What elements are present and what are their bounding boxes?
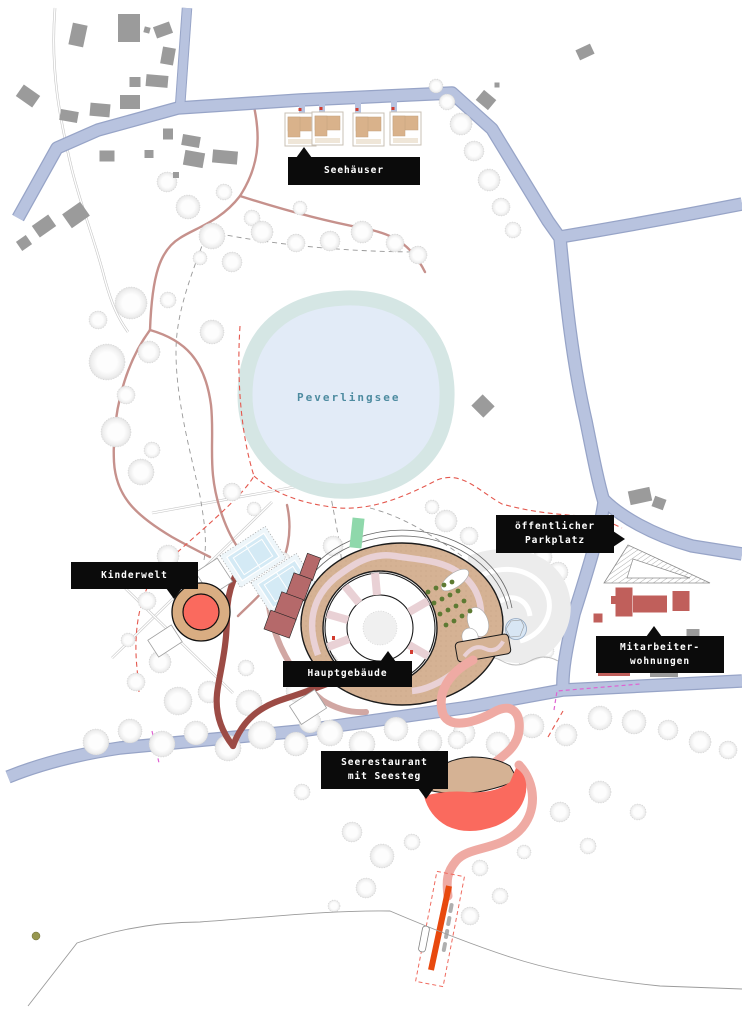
tree [517,845,531,859]
callout-pointer-icon [646,626,662,637]
tree [144,442,160,458]
tree [89,344,125,380]
tree [439,94,455,110]
tree [409,246,427,264]
tree [247,502,261,516]
callout-label: Parkplatz [525,534,585,548]
building [118,14,140,42]
building [173,172,179,178]
tree [351,221,373,243]
building [471,394,494,417]
tree [89,311,107,329]
callout-label: mit Seesteg [348,770,421,784]
marker-dot [32,932,40,940]
planting-dot [444,623,449,628]
seesteg-pier [416,871,465,986]
building [495,83,500,88]
callout-label: wohnungen [630,655,690,669]
callout-seehaeuser: Seehäuser [288,157,420,185]
tree [184,721,208,745]
tree [550,802,570,822]
tree [450,113,472,135]
tree [200,320,224,344]
tree [555,724,577,746]
tree [101,417,131,447]
tree [284,732,308,756]
tree [294,784,310,800]
planting-dot [468,609,473,614]
tree [478,169,500,191]
tree [83,729,109,755]
seehaus-roof [356,117,368,137]
tree [138,341,160,363]
tree [589,781,611,803]
tree [588,706,612,730]
tree [164,687,192,715]
callout-pointer-icon [613,531,625,547]
building [145,150,154,158]
tree [176,195,200,219]
callout-mitarbeiterwohnungen: Mitarbeiter- wohnungen [596,636,724,673]
building [212,149,238,164]
tree [127,673,145,691]
driveway-marker [356,108,359,111]
planting-dot [442,583,447,588]
tree [287,234,305,252]
tree [356,878,376,898]
tree [460,527,478,545]
building [146,74,169,88]
tree [293,201,307,215]
planting-dot [446,608,451,613]
seehaeuser-houses [285,107,421,146]
callout-label: Seehäuser [324,164,384,178]
driveway-marker [392,107,395,110]
building [62,202,90,229]
building [16,235,32,251]
staff-building [611,596,617,604]
building [130,77,141,87]
planting-dot [460,614,465,619]
tree [658,720,678,740]
tree [138,592,156,610]
seehaus-roof [393,116,405,136]
tree [199,223,225,249]
building [183,150,205,168]
planting-dot [432,601,437,606]
callout-hauptgebaeude: Hauptgebäude [283,661,412,687]
tree [238,660,254,676]
tree [128,459,154,485]
tree [216,184,232,200]
tree [193,251,207,265]
driveway-marker [320,107,323,110]
tree [160,292,176,308]
green-path [349,517,364,548]
lake-peverlingsee: Peverlingsee [245,298,447,491]
planting-dot [454,604,459,609]
planting-dot [440,597,445,602]
seehaus-terrace [393,138,418,143]
callout-label: Seerestaurant [341,756,428,770]
tree [689,731,711,753]
tree [429,79,443,93]
planting-dot [426,590,431,595]
tree [448,731,466,749]
seehaus-terrace [315,138,340,143]
tree [492,198,510,216]
building [181,134,201,148]
seehaus-roof [315,116,327,136]
site-plan-canvas: Peverlingsee [0,0,742,1009]
callout-pointer-icon [166,588,182,599]
callout-label: Kinderwelt [101,569,168,583]
tree [117,386,135,404]
planting-dot [452,619,457,624]
courtyard-tree [363,611,397,645]
tree [222,252,242,272]
tree [149,731,175,757]
tree [622,710,646,734]
callout-label: öffentlicher [515,520,595,534]
dinghy [448,903,454,914]
tree [384,717,408,741]
tree [317,720,343,746]
site-plan: Peverlingsee [0,0,742,1009]
tree [425,500,439,514]
building [163,129,173,140]
building [16,85,40,108]
planting-dot [462,599,467,604]
tree [435,510,457,532]
callout-pointer-icon [380,651,396,662]
building [143,26,150,33]
staff-building [594,614,603,623]
boat [418,926,430,953]
building [153,21,173,38]
building [100,151,115,162]
seehaus-roof [288,117,300,137]
building [89,103,110,118]
building [628,487,652,505]
callout-pointer-icon [296,147,312,158]
staff-building [616,588,633,617]
tree [472,860,488,876]
seehaus-terrace [356,139,381,144]
building [160,47,176,66]
building [68,23,87,48]
planting-dot [438,612,443,617]
tree [370,844,394,868]
planting-dot [434,586,439,591]
tree [223,483,241,501]
tree [251,221,273,243]
callout-kinderwelt: Kinderwelt [71,562,198,589]
tree [342,822,362,842]
tree [248,721,276,749]
tree [492,888,508,904]
driveway-marker [299,108,302,111]
planting-dot [450,580,455,585]
dinghy [441,942,447,953]
building [476,90,497,110]
tree [320,231,340,251]
planting-dot [456,589,461,594]
callout-parkplatz: öffentlicher Parkplatz [496,515,614,553]
callout-pointer-icon [418,788,434,799]
tree [115,287,147,319]
building [575,44,594,61]
building [120,95,140,109]
tree [404,834,420,850]
planting-dot [448,593,453,598]
tree [328,900,340,912]
tree [580,838,596,854]
tree [505,222,521,238]
tree [461,907,479,925]
tree [121,633,135,647]
tree [118,719,142,743]
tree [630,804,646,820]
building [32,215,56,238]
staff-building [673,591,690,611]
seehaus-terrace [288,139,313,144]
tree [719,741,737,759]
callout-label: Hauptgebäude [307,667,387,681]
callout-label: Mitarbeiter- [620,641,700,655]
shoreline [28,911,742,1006]
tree [464,141,484,161]
building [651,496,666,510]
callout-seerestaurant: Seerestaurant mit Seesteg [321,751,448,789]
lake-label: Peverlingsee [297,391,400,404]
tree [386,234,404,252]
dinghy [446,916,452,927]
staff-building [633,596,667,613]
